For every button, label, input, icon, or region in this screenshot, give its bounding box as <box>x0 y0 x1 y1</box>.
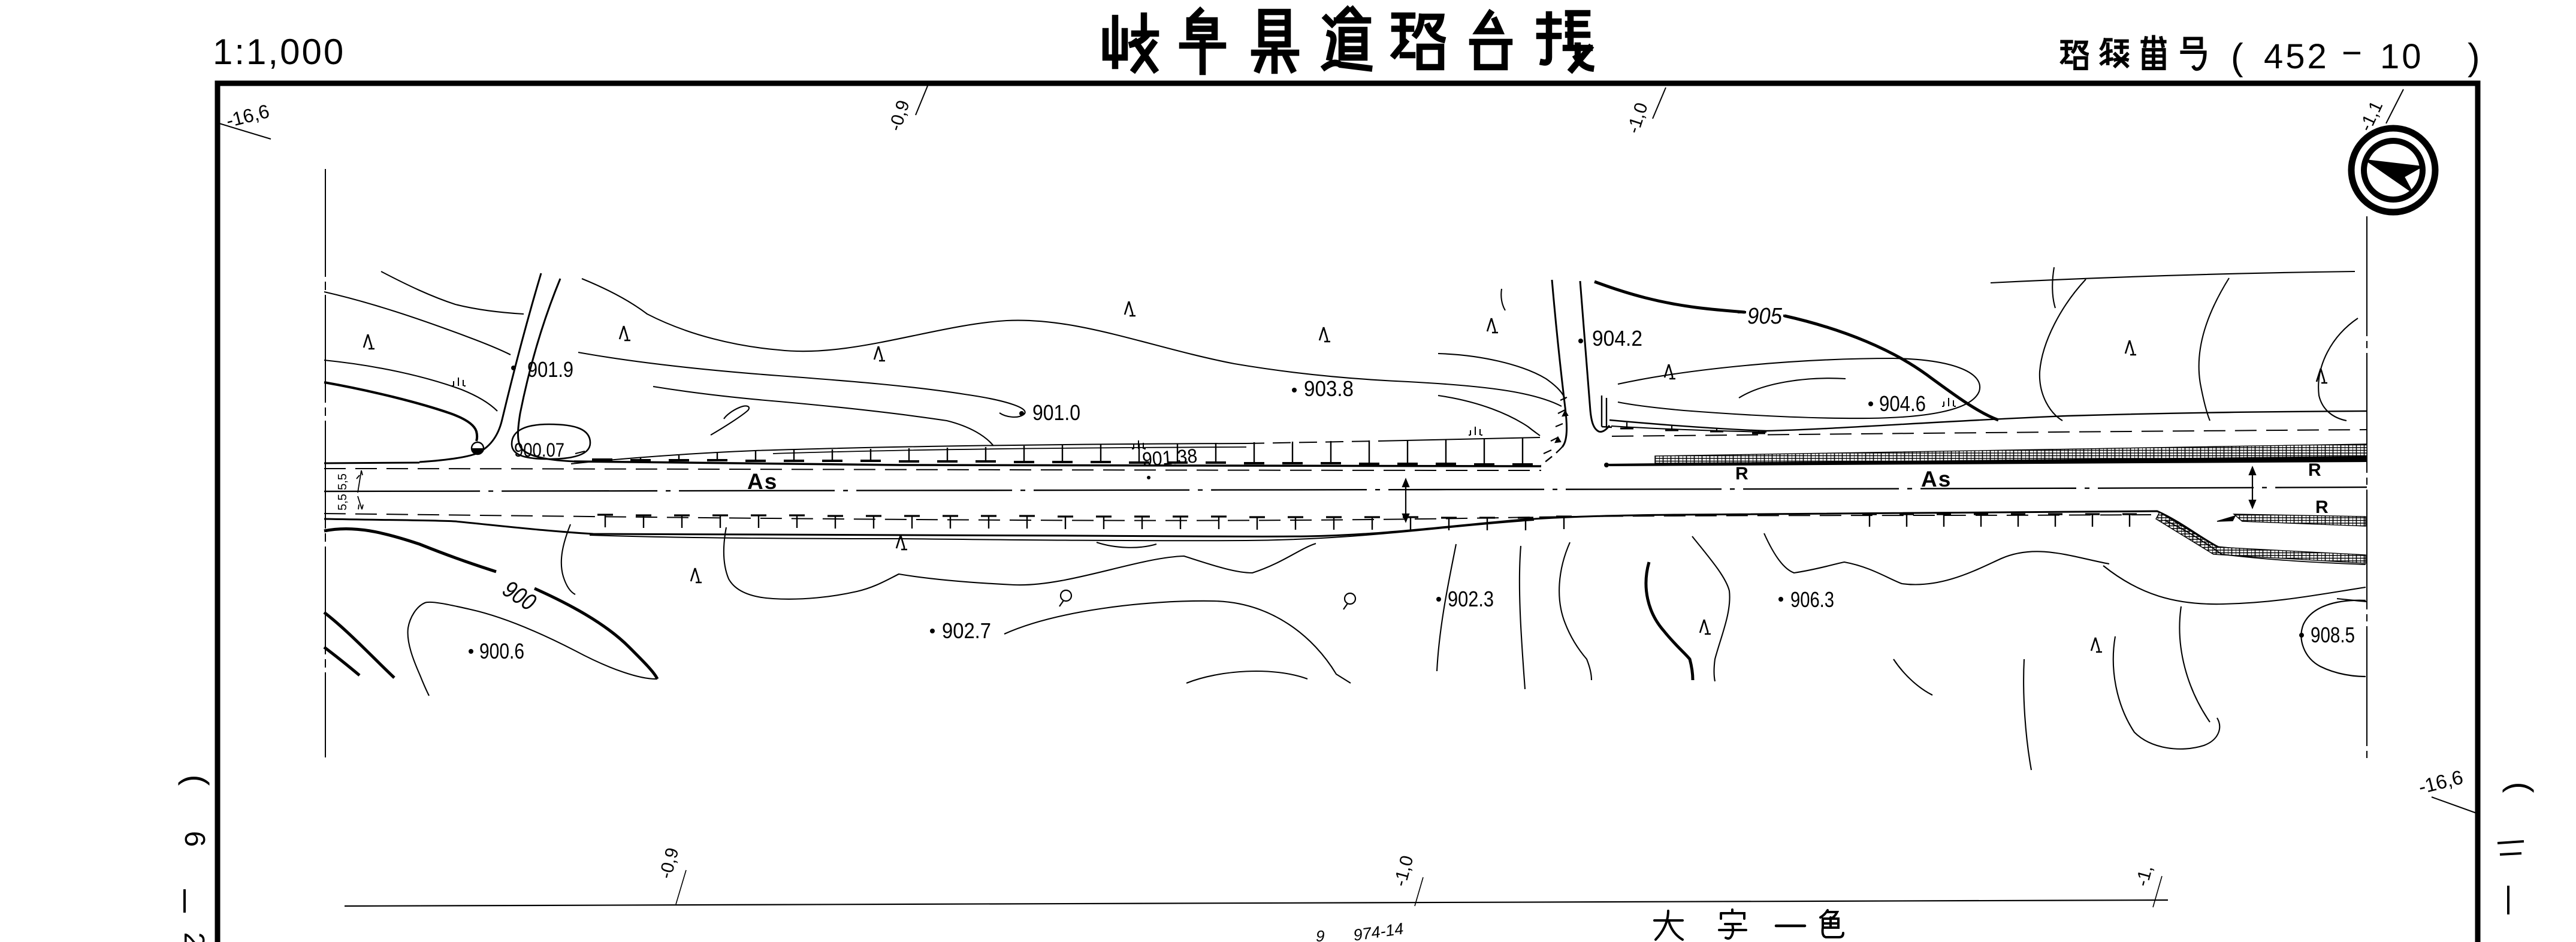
svg-text:903.8: 903.8 <box>1304 376 1354 401</box>
svg-text:5,5: 5,5 <box>336 494 349 511</box>
svg-text:900.6: 900.6 <box>479 639 524 663</box>
svg-text:(: ( <box>178 775 216 786</box>
svg-text:9: 9 <box>1316 927 1324 942</box>
svg-text:As: As <box>747 469 778 494</box>
svg-text:R: R <box>2308 460 2321 480</box>
svg-text:(: ( <box>2502 782 2540 793</box>
svg-text:10: 10 <box>2380 37 2424 76</box>
svg-text:901.9: 901.9 <box>527 357 573 382</box>
svg-text:As: As <box>1921 467 1952 491</box>
svg-text:6: 6 <box>179 831 210 847</box>
svg-text:5,5: 5,5 <box>336 473 349 490</box>
svg-text:900.07: 900.07 <box>514 439 564 461</box>
svg-text:−: − <box>2342 34 2362 73</box>
svg-text:1:1,000: 1:1,000 <box>213 32 345 72</box>
svg-text:452: 452 <box>2264 37 2329 76</box>
svg-text:R: R <box>2315 497 2329 517</box>
svg-text:904.2: 904.2 <box>1592 326 1642 351</box>
svg-text:901.0: 901.0 <box>1032 400 1080 425</box>
svg-text:906.3: 906.3 <box>1790 587 1834 612</box>
svg-text:908.5: 908.5 <box>2311 623 2355 647</box>
svg-text:901.38: 901.38 <box>1141 445 1198 470</box>
svg-text:902.7: 902.7 <box>942 618 991 643</box>
svg-text:905: 905 <box>1747 304 1783 329</box>
svg-text:902.3: 902.3 <box>1448 587 1494 611</box>
svg-text:2: 2 <box>178 932 210 942</box>
svg-text:(: ( <box>2231 37 2243 78</box>
svg-text:R: R <box>1735 464 1748 484</box>
svg-text:904.6: 904.6 <box>1879 391 1926 416</box>
svg-text:): ) <box>2468 37 2480 78</box>
